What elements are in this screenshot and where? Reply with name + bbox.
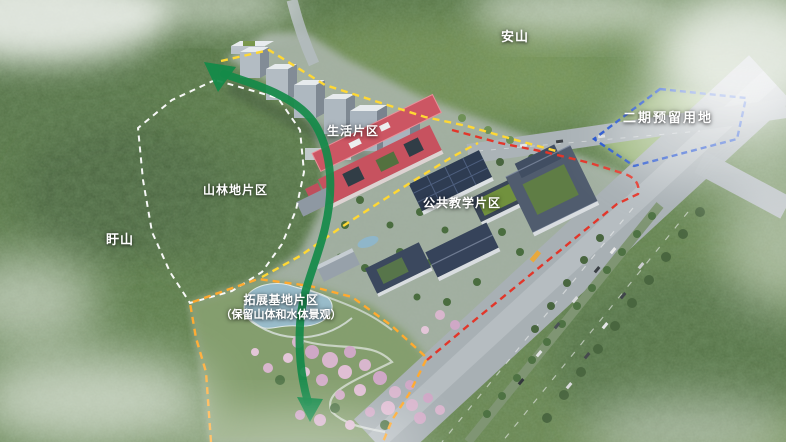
label-living-zone: 生活片区 — [327, 124, 379, 139]
label-teaching-zone: 公共教学片区 — [423, 196, 501, 211]
tower — [240, 47, 269, 78]
label-phase2-reserved: 二期预留用地 — [623, 111, 713, 127]
label-expansion-zone-title: 拓展基地片区 — [176, 293, 386, 308]
label-forest-zone: 山林地片区 — [203, 183, 268, 198]
label-expansion-zone: 拓展基地片区 （保留山体和水体景观） — [176, 293, 386, 322]
label-mountain-anshan: 安山 — [501, 30, 529, 46]
masterplan-aerial-rendering: 安山 二期预留用地 生活片区 山林地片区 盱山 公共教学片区 拓展基地片区 （保… — [0, 0, 786, 442]
label-mountain-xushan: 盱山 — [106, 233, 134, 249]
site-plan-scene — [0, 0, 786, 442]
label-expansion-zone-note: （保留山体和水体景观） — [176, 308, 386, 322]
